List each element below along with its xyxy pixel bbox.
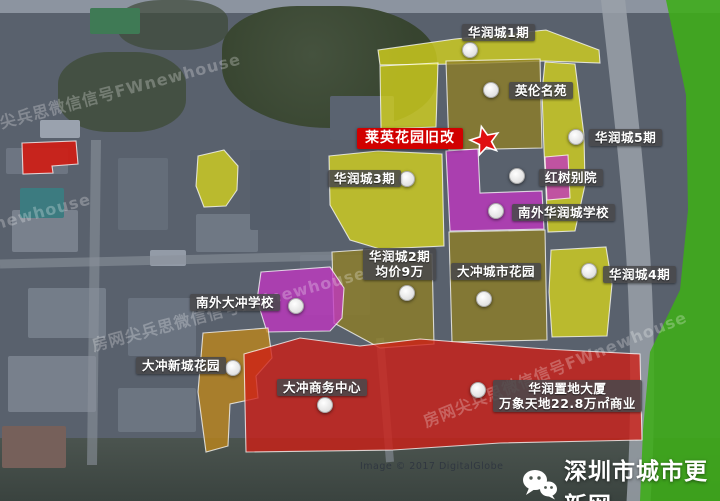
branding: 深圳市城市更新网 [522, 452, 720, 501]
marker-dot [317, 397, 333, 413]
marker-dot [488, 203, 504, 219]
city-road [92, 140, 96, 465]
label-dachong-city-garden: 大冲城市花园 [451, 263, 541, 280]
label-yinglun-mingyuan: 英伦名苑 [509, 82, 573, 99]
label-nanwai-huarun-school: 南外华润城学校 [512, 204, 615, 221]
label-huarun-zhidi-tower: 华润置地大厦 万象天地22.8万㎡商业 [493, 380, 642, 412]
zone-huarun-city-1-left [380, 63, 438, 129]
label-dachong-xincheng-garden: 大冲新城花园 [136, 357, 226, 374]
zone-dachong-city-garden [449, 230, 547, 342]
label-huarun-city-3: 华润城3期 [328, 170, 401, 187]
highlight-star-icon [467, 122, 503, 162]
marker-dot [399, 285, 415, 301]
marker-dot [483, 82, 499, 98]
zone-huarun-city-3 [329, 151, 444, 249]
label-hongshu-bieyuan: 红树别院 [539, 169, 603, 186]
marker-dot [225, 360, 241, 376]
marker-dot [470, 382, 486, 398]
imagery-copyright: Image © 2017 DigitalGlobe [360, 461, 504, 472]
zones-overlay [0, 0, 720, 501]
label-nanwai-dachong-school: 南外大冲学校 [190, 294, 280, 311]
marker-dot [509, 168, 525, 184]
marker-dot [476, 291, 492, 307]
highlight-label: 莱英花园旧改 [357, 128, 463, 149]
label-huarun-city-1: 华润城1期 [462, 24, 535, 41]
marker-dot [462, 42, 478, 58]
label-huarun-city-2: 华润城2期 均价9万 [363, 248, 436, 280]
zone-riverside-green [640, 0, 720, 501]
marker-dot [288, 298, 304, 314]
marker-dot [581, 263, 597, 279]
zone-huarun-city-4 [549, 247, 612, 337]
zone-yellow-small-left [196, 150, 238, 207]
redevelopment-map: 房网尖兵思微信信号FWnewhouse 房网尖兵思微信信号FWnewhouse … [0, 0, 720, 501]
city-road [0, 256, 335, 264]
marker-dot [399, 171, 415, 187]
label-dachong-business-center: 大冲商务中心 [277, 379, 367, 396]
marker-dot [568, 129, 584, 145]
branding-text: 深圳市城市更新网 [564, 452, 720, 501]
wechat-icon [522, 468, 558, 501]
label-huarun-city-4: 华润城4期 [603, 266, 676, 283]
label-huarun-city-5: 华润城5期 [589, 129, 662, 146]
zone-red-small [22, 141, 78, 174]
